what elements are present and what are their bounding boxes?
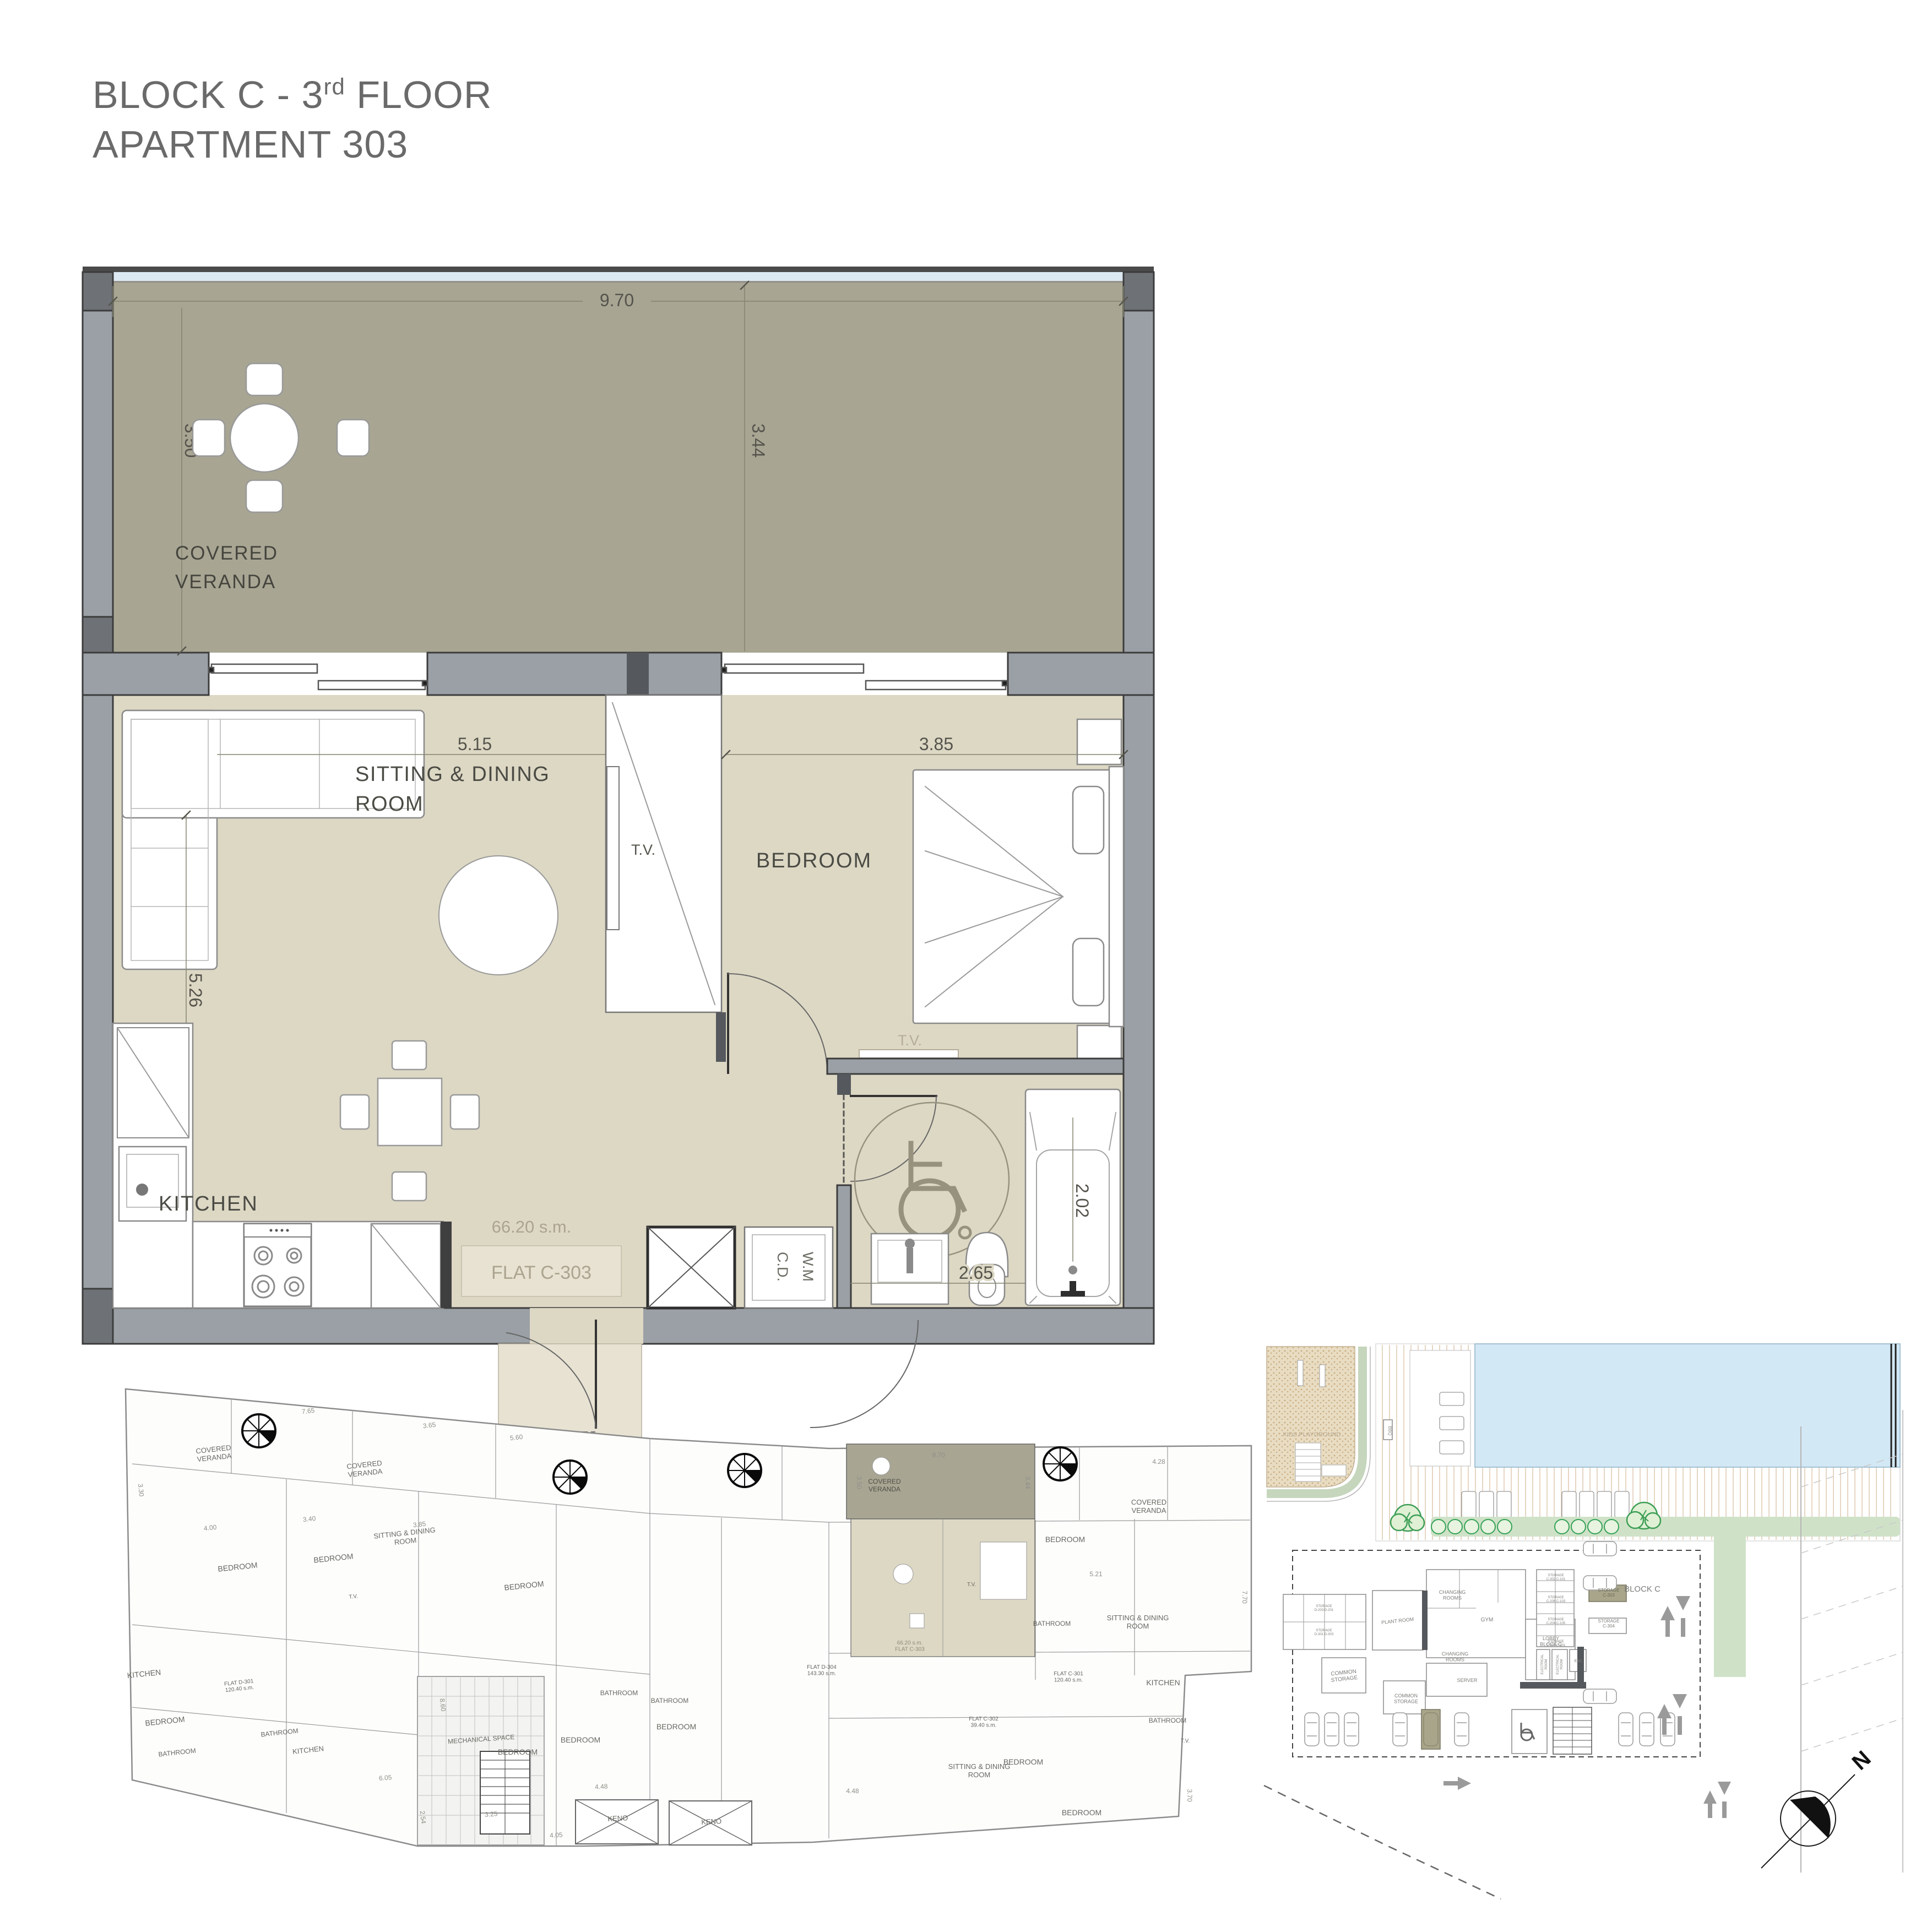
bedroom-furniture xyxy=(913,719,1124,1059)
mini-plan-dimension: 3.30 xyxy=(137,1483,145,1497)
cd-label: C.D. xyxy=(774,1252,791,1282)
dim-bathroom-width: 2.65 xyxy=(959,1263,993,1283)
mini-plan-dimension: 4.48 xyxy=(846,1787,859,1795)
mini-plan-label: BEDROOM xyxy=(1045,1535,1085,1544)
dim-bathtub-length: 2.02 xyxy=(1072,1184,1092,1218)
round-rug xyxy=(439,856,558,975)
mini-plan-dimension: 4.00 xyxy=(203,1523,217,1532)
mini-plan-dimension: 3.40 xyxy=(302,1515,316,1523)
mini-plan-label: BATHROOM xyxy=(600,1689,638,1697)
mini-plan-label: T.V. xyxy=(349,1593,358,1600)
dim-sitting-depth: 5.26 xyxy=(186,973,205,1007)
highlighted-parking-c303 xyxy=(1421,1710,1440,1749)
mini-plan-dimension: 8.60 xyxy=(438,1698,447,1712)
mini-plan-dimension: 2.54 xyxy=(419,1810,427,1824)
mini-plan-label: KENO xyxy=(701,1817,722,1826)
site-plan-label: EAC xyxy=(1575,1659,1582,1663)
mini-plan-label: KENO xyxy=(607,1814,628,1823)
mini-plan-dimension: 4.28 xyxy=(1152,1458,1165,1466)
wm-label: W.M xyxy=(800,1252,816,1282)
bedroom-tv-label: T.V. xyxy=(898,1032,922,1049)
mini-plan-dimension: 3.44 xyxy=(1024,1476,1032,1489)
dim-veranda-right: 3.44 xyxy=(748,424,768,458)
mini-plan-label: BEDROOM xyxy=(656,1722,696,1731)
slider-wall xyxy=(83,653,1154,695)
tv-closet xyxy=(606,695,721,1012)
site-plan-label: COMMONSTORAGE xyxy=(1394,1693,1418,1704)
mini-plan-dimension: 4.05 xyxy=(550,1831,563,1839)
tv-unit-label: T.V. xyxy=(631,842,655,858)
ground-floor-building xyxy=(1283,1542,1700,1757)
mini-plan-label: BATHROOM xyxy=(1033,1620,1071,1627)
sitting-room-label-1: SITTING & DINING xyxy=(355,763,550,786)
mini-plan-label: BEDROOM xyxy=(498,1748,538,1756)
site-plan-label: GYM xyxy=(1481,1617,1494,1623)
mini-plan-dimension: 7.70 xyxy=(1241,1591,1249,1604)
mini-plan-label: BATHROOM xyxy=(651,1697,688,1705)
veranda-label-2: VERANDA xyxy=(175,571,276,593)
kitchen-label: KITCHEN xyxy=(159,1192,258,1215)
mini-plan-label: KITCHEN xyxy=(1146,1678,1180,1687)
mini-plan-label: FLAT D-304143.30 s.m. xyxy=(807,1664,837,1677)
north-label: N xyxy=(1848,1746,1876,1775)
site-plan-label: KIDS PLAYGROUND xyxy=(1283,1431,1341,1438)
mini-plan-dimension: 5.60 xyxy=(509,1433,523,1442)
mini-plan-dimension: 6.05 xyxy=(378,1773,392,1782)
mini-plan-dimension: 3.65 xyxy=(422,1421,436,1430)
mini-plan-dimension: 5.21 xyxy=(1089,1570,1103,1578)
flat-number-label: FLAT C-303 xyxy=(491,1262,591,1283)
mini-plan-label: T.V. xyxy=(1181,1738,1190,1744)
site-plan-label: STORAGED-301 D-303 xyxy=(1315,1629,1334,1636)
playground xyxy=(1267,1347,1370,1501)
bedroom-label: BEDROOM xyxy=(756,849,872,872)
mini-plan-dimension: 3.70 xyxy=(1186,1789,1193,1802)
mini-plan-dimension: 3.85 xyxy=(413,1520,426,1529)
site-plan-label: STORAGEC-202 C-201 xyxy=(1546,1640,1566,1647)
site-plan-label: BLOCK C xyxy=(1624,1584,1660,1594)
site-plan-label: SERVER xyxy=(1457,1678,1478,1683)
mini-plan-label: BEDROOM xyxy=(1003,1757,1043,1766)
balustrade-line xyxy=(83,267,1154,272)
mini-plan-dimension: 4.48 xyxy=(595,1782,608,1790)
site-plan-label: BBQ xyxy=(1387,1426,1392,1436)
mini-plan-label: FLAT C-30239.40 s.m. xyxy=(969,1716,998,1729)
mini-plan-label: FLAT C-301120.40 s.m. xyxy=(1054,1671,1083,1684)
plan-graphics: 9.70 3.50 3.44 COVERED VERANDA xyxy=(0,0,1932,1932)
veranda-label-1: COVERED xyxy=(175,542,278,564)
glass-band xyxy=(83,272,1154,281)
site-plan-label: CHANGINGROOMS xyxy=(1442,1651,1469,1662)
area-label: 66.20 s.m. xyxy=(492,1217,572,1236)
mini-plan-label: COVEREDVERANDA xyxy=(1131,1498,1166,1515)
mini-plan-label: BEDROOM xyxy=(561,1735,600,1744)
site-plan-label: STORAGED-203 D-201 xyxy=(1315,1605,1334,1612)
mini-plan-label: BATHROOM xyxy=(1149,1717,1186,1724)
dim-bedroom-width: 3.85 xyxy=(919,734,953,754)
shaft xyxy=(648,1227,735,1308)
dim-total-width: 9.70 xyxy=(600,290,634,310)
mini-highlighted-flat xyxy=(846,1444,1035,1657)
site-plan-label: STORAGEC-204 C-105 xyxy=(1546,1618,1566,1625)
main-apartment-plan: 9.70 3.50 3.44 COVERED VERANDA xyxy=(83,267,1154,1440)
swimming-pool xyxy=(1475,1344,1900,1467)
dim-sitting-width: 5.15 xyxy=(458,734,492,754)
mini-plan-dimension: 7.65 xyxy=(301,1407,315,1415)
north-arrow: N xyxy=(1761,1746,1875,1868)
mini-plan-dimension: 3.25 xyxy=(485,1810,498,1819)
mini-plan-label: 66.20 s.m.FLAT C-303 xyxy=(895,1640,925,1653)
site-plan-label: CHANGINGROOMS xyxy=(1439,1589,1466,1600)
mini-plan-dimension: 3.50 xyxy=(855,1476,863,1489)
sitting-room-label-2: ROOM xyxy=(355,793,424,816)
floorplan-sheet: BLOCK C - 3rd FLOOR APARTMENT 303 xyxy=(0,0,1932,1932)
mini-plan-dimension: 9.70 xyxy=(932,1451,945,1459)
site-plan-label: STORAGEC-206 C-103 xyxy=(1546,1596,1566,1603)
mini-plan-label: COVEREDVERANDA xyxy=(868,1478,901,1493)
mini-floor-plan: COVEREDVERANDACOVEREDVERANDACOVEREDVERAN… xyxy=(126,1389,1251,1846)
mini-plan-label: T.V. xyxy=(967,1582,976,1588)
site-plan-label: STORAGEC-302 C-101 xyxy=(1546,1574,1566,1581)
cd-wm-closet: C.D. W.M xyxy=(745,1227,833,1308)
mini-plan-label: BEDROOM xyxy=(1062,1808,1101,1817)
